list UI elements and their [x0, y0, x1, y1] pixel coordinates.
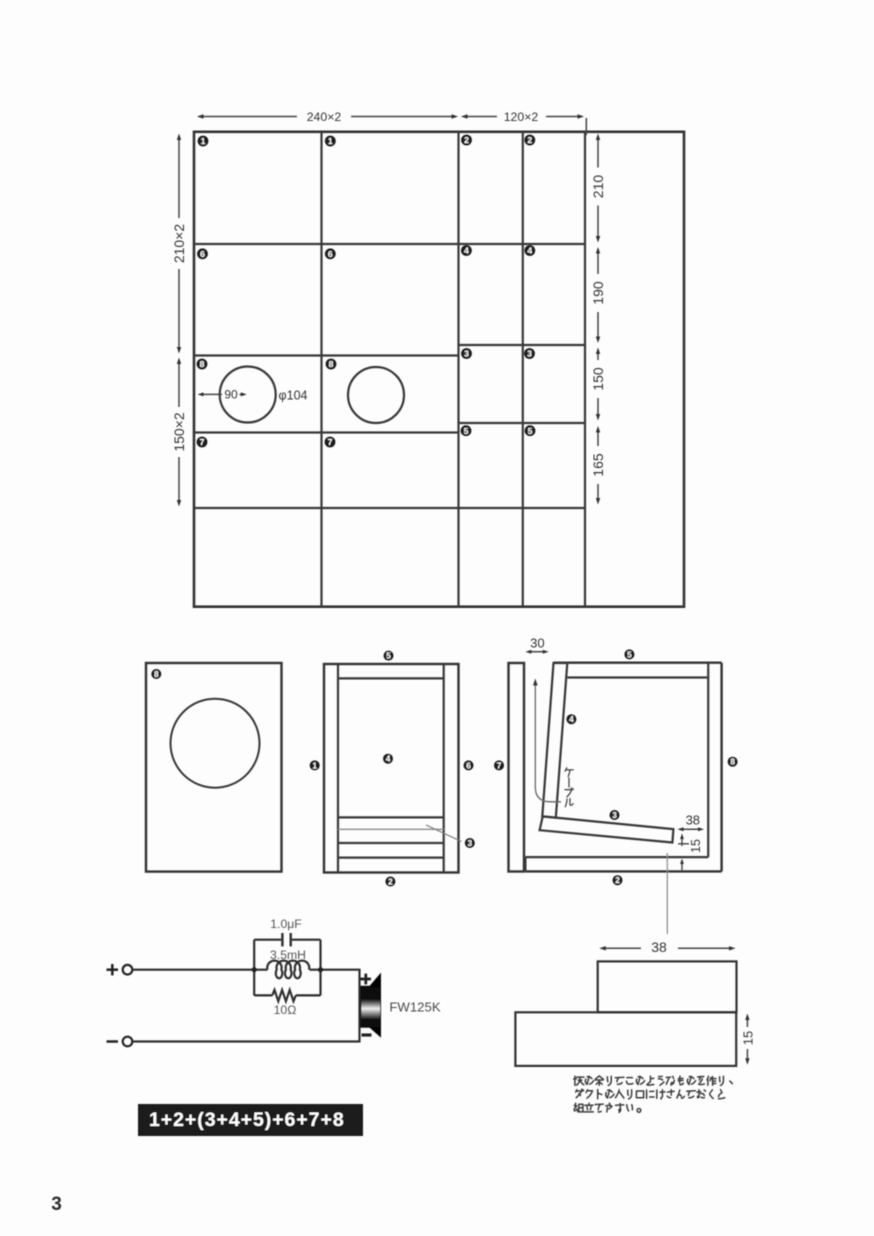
- svg-text:38: 38: [686, 813, 700, 828]
- svg-text:8: 8: [329, 359, 334, 369]
- svg-text:6: 6: [466, 761, 471, 770]
- svg-text:4: 4: [386, 755, 391, 764]
- svg-text:7: 7: [328, 437, 333, 447]
- svg-text:7: 7: [497, 761, 502, 770]
- svg-text:4: 4: [527, 246, 532, 256]
- svg-text:240×2: 240×2: [307, 110, 342, 124]
- svg-text:φ104: φ104: [279, 388, 308, 402]
- svg-text:165: 165: [590, 453, 606, 477]
- svg-text:3.5mH: 3.5mH: [270, 948, 306, 962]
- svg-text:5: 5: [386, 652, 391, 661]
- svg-text:210×2: 210×2: [171, 224, 187, 264]
- svg-text:3: 3: [527, 349, 532, 359]
- svg-text:4: 4: [569, 715, 574, 724]
- svg-text:5: 5: [627, 650, 632, 659]
- svg-text:190: 190: [590, 281, 606, 305]
- svg-text:1: 1: [328, 136, 333, 146]
- svg-text:3: 3: [51, 1194, 62, 1215]
- svg-text:5: 5: [528, 426, 533, 436]
- svg-text:6: 6: [200, 249, 205, 259]
- svg-text:2: 2: [527, 135, 532, 145]
- svg-text:4: 4: [464, 246, 469, 256]
- svg-text:150: 150: [590, 367, 606, 391]
- svg-text:150×2: 150×2: [171, 412, 187, 452]
- svg-text:6: 6: [328, 249, 333, 259]
- svg-text:5: 5: [464, 426, 469, 436]
- svg-text:1: 1: [312, 761, 317, 770]
- svg-text:30: 30: [530, 636, 544, 651]
- svg-text:1+2+(3+4+5)+6+7+8: 1+2+(3+4+5)+6+7+8: [149, 1109, 345, 1131]
- svg-text:210: 210: [590, 175, 606, 199]
- svg-text:2: 2: [388, 878, 393, 887]
- svg-text:FW125K: FW125K: [389, 999, 441, 1014]
- svg-text:1.0μF: 1.0μF: [270, 917, 301, 931]
- svg-text:8: 8: [200, 359, 205, 369]
- svg-text:90: 90: [224, 388, 238, 402]
- svg-text:1: 1: [201, 136, 206, 146]
- svg-text:2: 2: [464, 135, 469, 145]
- svg-text:7: 7: [200, 437, 205, 447]
- svg-text:15: 15: [689, 839, 703, 853]
- svg-text:38: 38: [651, 939, 667, 955]
- svg-text:8: 8: [154, 670, 159, 679]
- svg-text:2: 2: [615, 876, 620, 885]
- svg-text:120×2: 120×2: [504, 110, 539, 124]
- svg-text:3: 3: [612, 811, 617, 820]
- svg-text:3: 3: [464, 349, 469, 359]
- svg-text:3: 3: [468, 839, 473, 848]
- svg-text:15: 15: [741, 1031, 756, 1045]
- svg-text:8: 8: [730, 758, 735, 767]
- svg-text:10Ω: 10Ω: [274, 1003, 297, 1017]
